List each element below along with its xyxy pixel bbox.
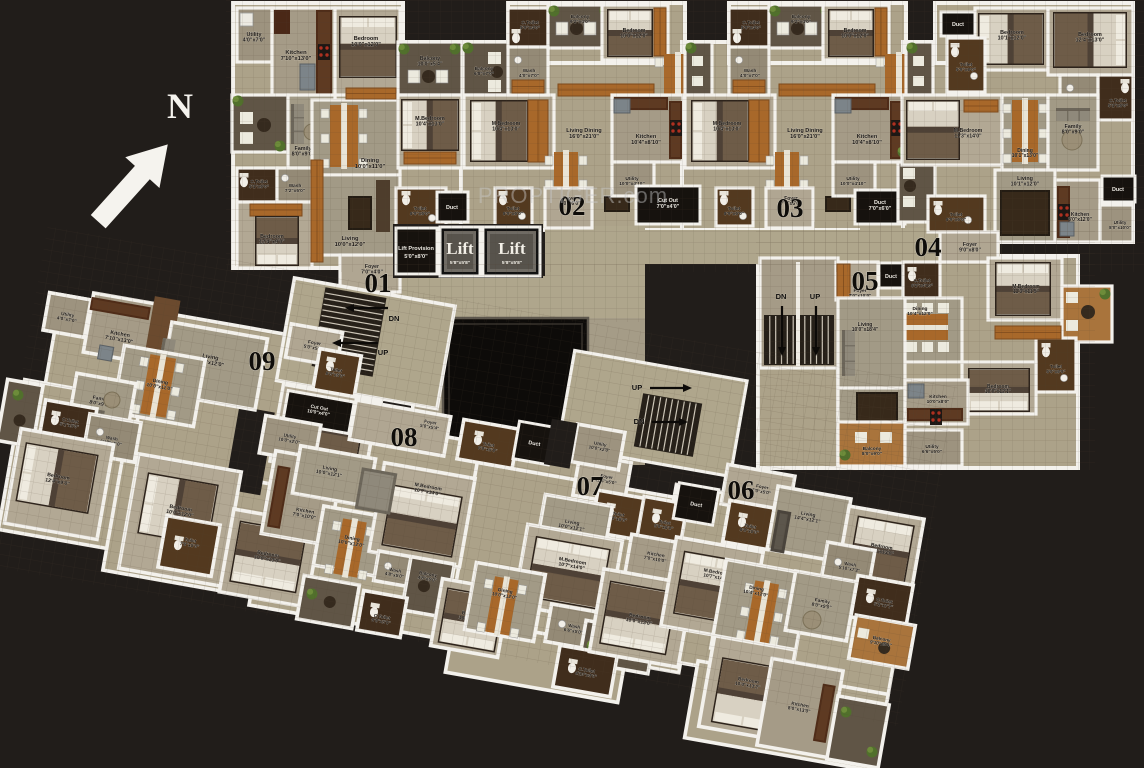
svg-text:03: 03: [777, 193, 804, 223]
svg-text:05: 05: [852, 266, 879, 296]
svg-text:DN: DN: [389, 314, 400, 323]
svg-text:PROPTIGER.com: PROPTIGER.com: [478, 183, 668, 208]
svg-text:UP: UP: [632, 383, 642, 392]
svg-text:UP: UP: [810, 292, 820, 301]
svg-text:07: 07: [577, 471, 604, 501]
svg-text:DN: DN: [776, 292, 787, 301]
svg-text:DN: DN: [634, 417, 645, 426]
svg-text:N: N: [167, 86, 193, 126]
svg-text:08: 08: [391, 422, 418, 452]
svg-text:06: 06: [728, 475, 755, 505]
svg-text:04: 04: [915, 232, 942, 262]
svg-text:01: 01: [365, 268, 392, 298]
svg-text:UP: UP: [378, 348, 388, 357]
svg-text:09: 09: [249, 346, 276, 376]
